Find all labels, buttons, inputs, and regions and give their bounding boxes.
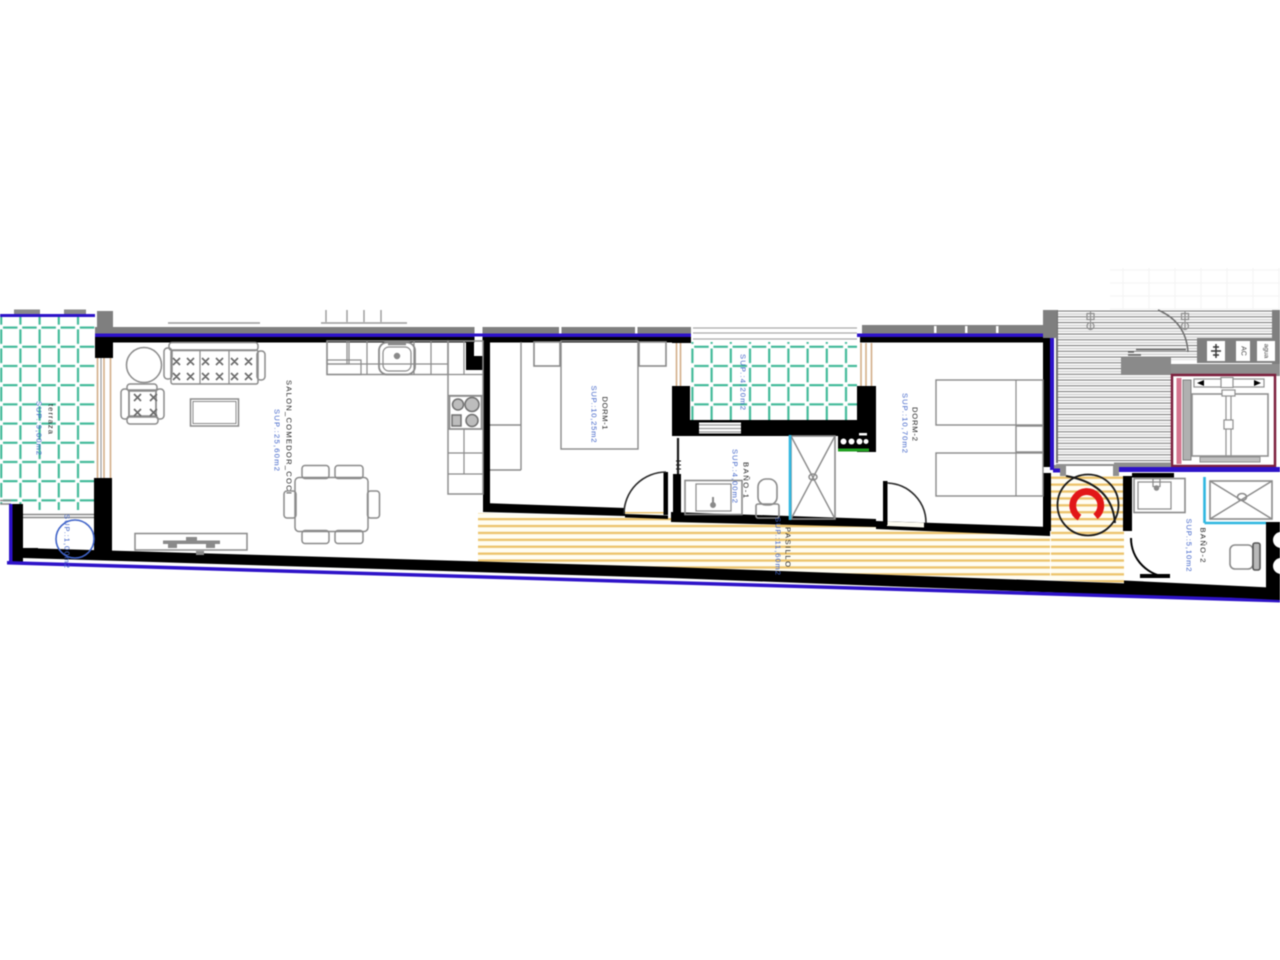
svg-text:AC: AC bbox=[1240, 346, 1247, 356]
svg-text:DORM-1: DORM-1 bbox=[601, 397, 610, 430]
svg-text:SUP.:10,25m2: SUP.:10,25m2 bbox=[590, 386, 599, 443]
svg-text:SUP.:5,10m2: SUP.:5,10m2 bbox=[1185, 519, 1194, 572]
svg-text:SUP.:4,00m2: SUP.:4,00m2 bbox=[731, 449, 740, 503]
svg-text:DORM-2: DORM-2 bbox=[911, 407, 920, 441]
svg-text:SUP.:9,00m2: SUP.:9,00m2 bbox=[35, 401, 44, 455]
svg-text:SUP.:4,20m2: SUP.:4,20m2 bbox=[739, 354, 748, 410]
svg-text:agua: agua bbox=[1263, 344, 1270, 359]
svg-text:SUP.:10,70m2: SUP.:10,70m2 bbox=[901, 393, 910, 453]
svg-text:SUP.:1,00m2: SUP.:1,00m2 bbox=[63, 514, 72, 568]
svg-text:SUP.:25,60m2: SUP.:25,60m2 bbox=[273, 409, 282, 471]
svg-text:terraza: terraza bbox=[47, 404, 56, 435]
svg-text:PASILLO: PASILLO bbox=[784, 527, 793, 567]
svg-text:SUP.:11,60m2: SUP.:11,60m2 bbox=[774, 517, 783, 575]
